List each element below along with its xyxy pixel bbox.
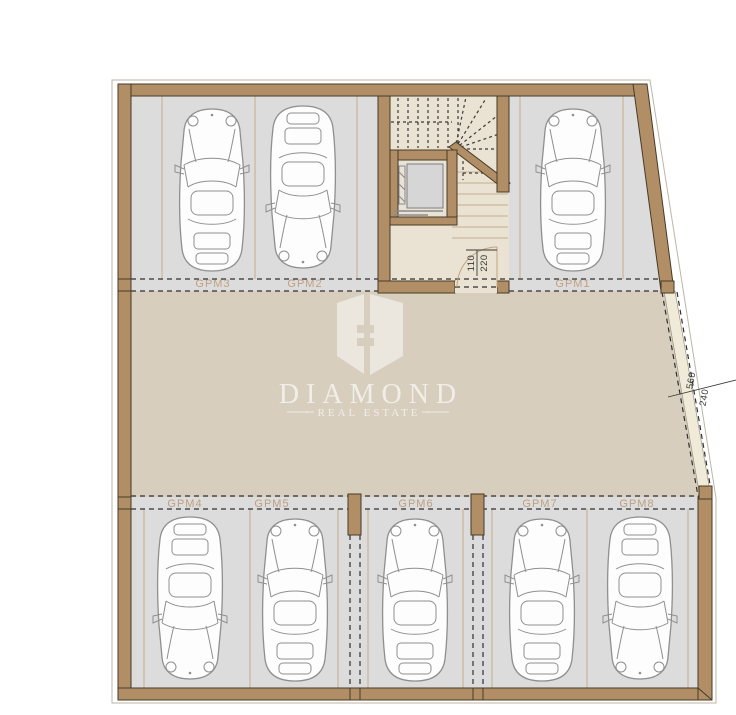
floor-plan-page: DIAMOND · REAL ESTATE · <box>0 0 736 715</box>
slant-wall-stub-top <box>661 281 674 293</box>
floor-plan-drawing: DIAMOND · REAL ESTATE · <box>0 0 736 715</box>
elevator-car <box>407 164 443 208</box>
column-pillar <box>471 494 484 535</box>
car-topview-icon <box>603 517 677 679</box>
spot-label-gpm4: GPM4 <box>167 498 202 510</box>
watermark-title: DIAMOND <box>279 379 463 410</box>
spot-label-gpm6: GPM6 <box>398 498 433 510</box>
stairwell-left-wall <box>378 96 390 293</box>
right-wall <box>698 497 712 700</box>
car-topview-icon <box>378 519 452 681</box>
car-topview-icon <box>258 519 332 681</box>
car-topview-icon <box>153 517 227 679</box>
car-topview-icon <box>536 109 610 271</box>
entry-dimension-height: 240 <box>698 388 712 407</box>
spot-label-gpm8: GPM8 <box>619 498 654 510</box>
left-wall <box>118 84 131 700</box>
door-dimension-width: 110 <box>466 255 477 272</box>
spot-label-gpm5: GPM5 <box>254 498 289 510</box>
stairwell-bottom-wall-stub <box>497 281 509 293</box>
car-topview-icon <box>175 109 249 271</box>
spot-label-gpm7: GPM7 <box>522 498 557 510</box>
top-wall <box>118 84 647 96</box>
car-topview-icon <box>505 519 579 681</box>
car-topview-icon <box>266 106 340 268</box>
stairwell-right-wall <box>497 96 509 192</box>
bottom-wall <box>118 688 712 700</box>
slant-wall-stub-bottom <box>699 486 712 499</box>
spot-label-gpm1: GPM1 <box>555 278 590 290</box>
stairwell-bottom-wall <box>378 281 455 293</box>
door-dimension-height: 220 <box>479 254 490 271</box>
elevator-shaft <box>388 150 457 225</box>
spot-label-gpm3: GPM3 <box>195 278 230 290</box>
entry-dimension-width: 560 <box>685 371 699 390</box>
column-pillar <box>348 494 361 535</box>
watermark-tagline: · REAL ESTATE · <box>305 407 433 419</box>
spot-label-gpm2: GPM2 <box>287 278 322 290</box>
